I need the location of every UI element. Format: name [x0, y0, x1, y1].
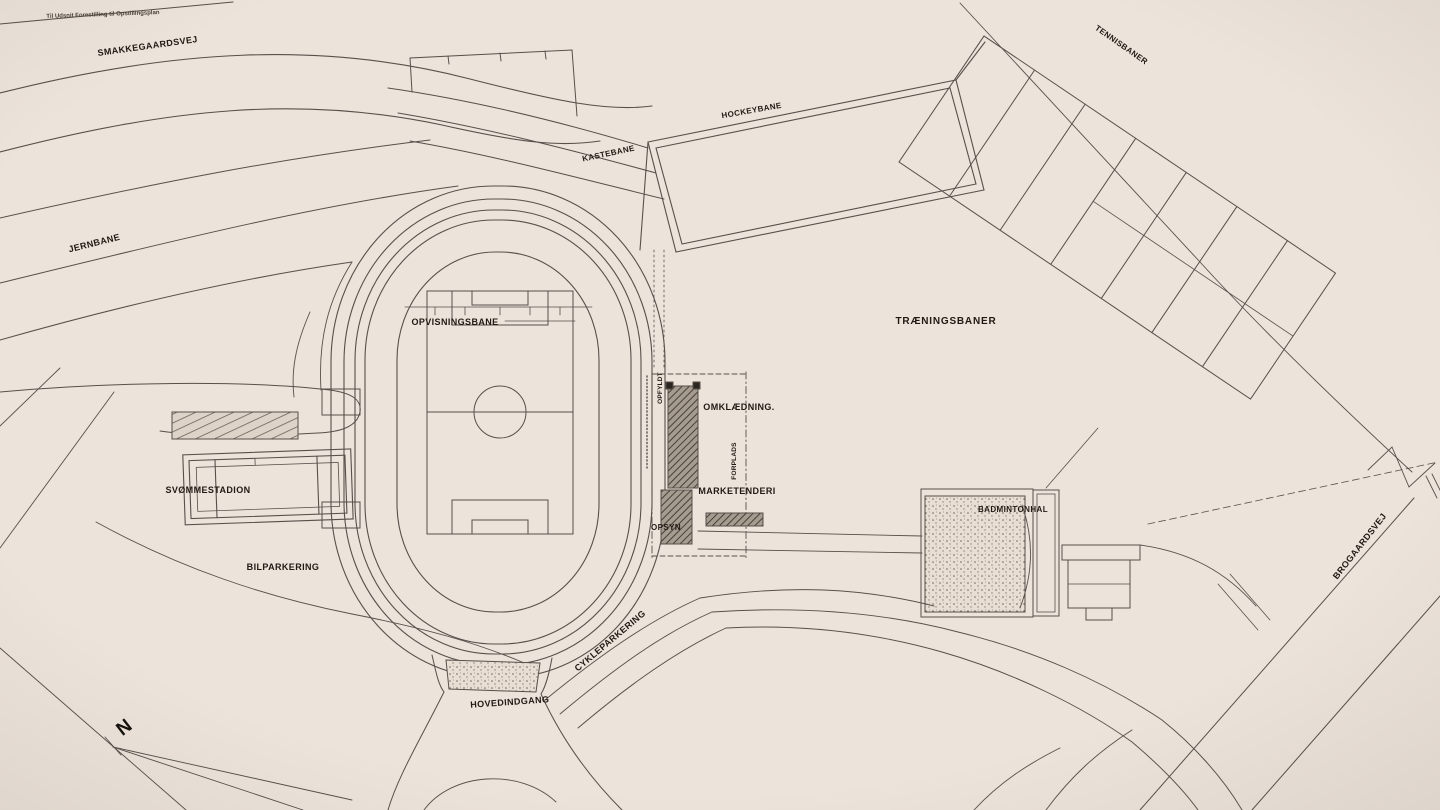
site-plan-drawing: Til Udsnit Forestilling til Opstillingsp… [0, 0, 1440, 810]
paper-vignette [0, 0, 1440, 810]
